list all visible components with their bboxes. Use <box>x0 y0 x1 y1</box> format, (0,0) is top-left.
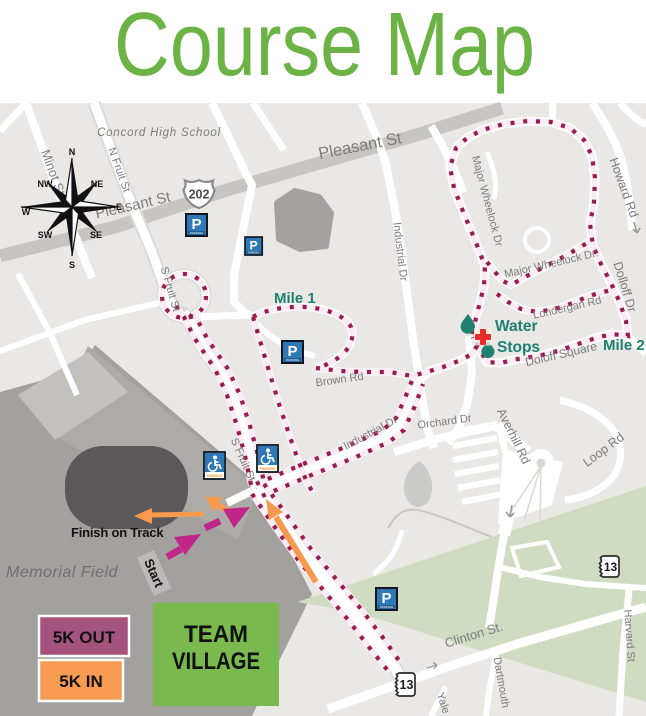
svg-text:E: E <box>116 202 122 212</box>
svg-text:13: 13 <box>400 678 414 692</box>
svg-text:PARKING: PARKING <box>380 605 394 609</box>
svg-text:Memorial Field: Memorial Field <box>6 564 119 581</box>
svg-text:NW: NW <box>38 179 53 189</box>
svg-text:Finish on Track: Finish on Track <box>71 525 164 540</box>
svg-text:202: 202 <box>189 188 210 202</box>
svg-text:13: 13 <box>604 560 618 574</box>
svg-text:Water: Water <box>495 318 538 335</box>
svg-text:N: N <box>69 147 76 157</box>
svg-text:Mile 1: Mile 1 <box>274 290 316 307</box>
svg-text:S: S <box>69 260 75 270</box>
svg-text:5K OUT: 5K OUT <box>53 628 116 647</box>
svg-text:5K IN: 5K IN <box>59 672 102 691</box>
svg-text:PARKING: PARKING <box>248 251 259 254</box>
svg-text:SE: SE <box>90 230 102 240</box>
svg-text:TEAM: TEAM <box>184 621 248 648</box>
svg-text:PARKING: PARKING <box>286 358 300 362</box>
svg-text:SW: SW <box>38 230 53 240</box>
svg-text:PARKING: PARKING <box>190 231 204 235</box>
svg-text:PARKING: PARKING <box>260 467 276 471</box>
svg-text:P: P <box>250 238 258 252</box>
svg-text:W: W <box>22 207 31 217</box>
svg-text:VILLAGE: VILLAGE <box>172 648 260 675</box>
svg-text:Course Map: Course Map <box>114 0 535 95</box>
svg-text:NE: NE <box>91 179 104 189</box>
svg-text:Concord High School: Concord High School <box>97 127 221 139</box>
svg-text:Mile 2: Mile 2 <box>603 337 645 354</box>
svg-text:Stops: Stops <box>497 339 540 356</box>
svg-text:PARKING: PARKING <box>207 474 223 478</box>
